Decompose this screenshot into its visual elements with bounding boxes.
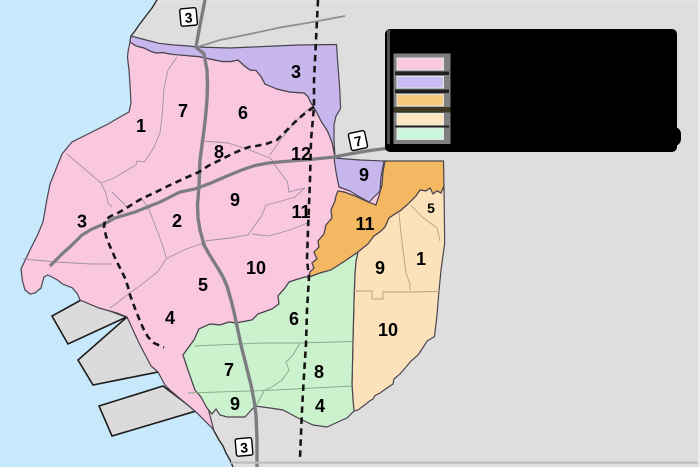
svg-text:10: 10 [246, 258, 266, 278]
svg-text:5: 5 [198, 275, 208, 295]
svg-text:3: 3 [291, 62, 301, 82]
svg-text:11: 11 [291, 202, 310, 222]
svg-text:12: 12 [291, 144, 311, 164]
svg-text:3: 3 [239, 439, 248, 456]
svg-text:9: 9 [230, 394, 240, 414]
svg-text:8: 8 [214, 142, 224, 162]
svg-text:4: 4 [165, 308, 175, 328]
svg-text:9: 9 [359, 165, 369, 185]
svg-text:7: 7 [224, 360, 234, 380]
svg-text:2: 2 [172, 211, 182, 231]
svg-text:9: 9 [375, 258, 385, 278]
svg-text:6: 6 [238, 103, 248, 123]
svg-text:1: 1 [136, 116, 146, 136]
svg-text:3: 3 [77, 212, 87, 232]
svg-text:1: 1 [416, 249, 426, 269]
svg-text:9: 9 [230, 190, 240, 210]
svg-text:4: 4 [315, 396, 325, 416]
svg-text:3: 3 [184, 9, 193, 26]
svg-text:8: 8 [314, 362, 324, 382]
svg-text:6: 6 [289, 309, 299, 329]
svg-text:7: 7 [178, 101, 188, 121]
svg-text:10: 10 [378, 320, 398, 340]
svg-text:5: 5 [427, 200, 435, 216]
svg-text:11: 11 [355, 214, 374, 234]
